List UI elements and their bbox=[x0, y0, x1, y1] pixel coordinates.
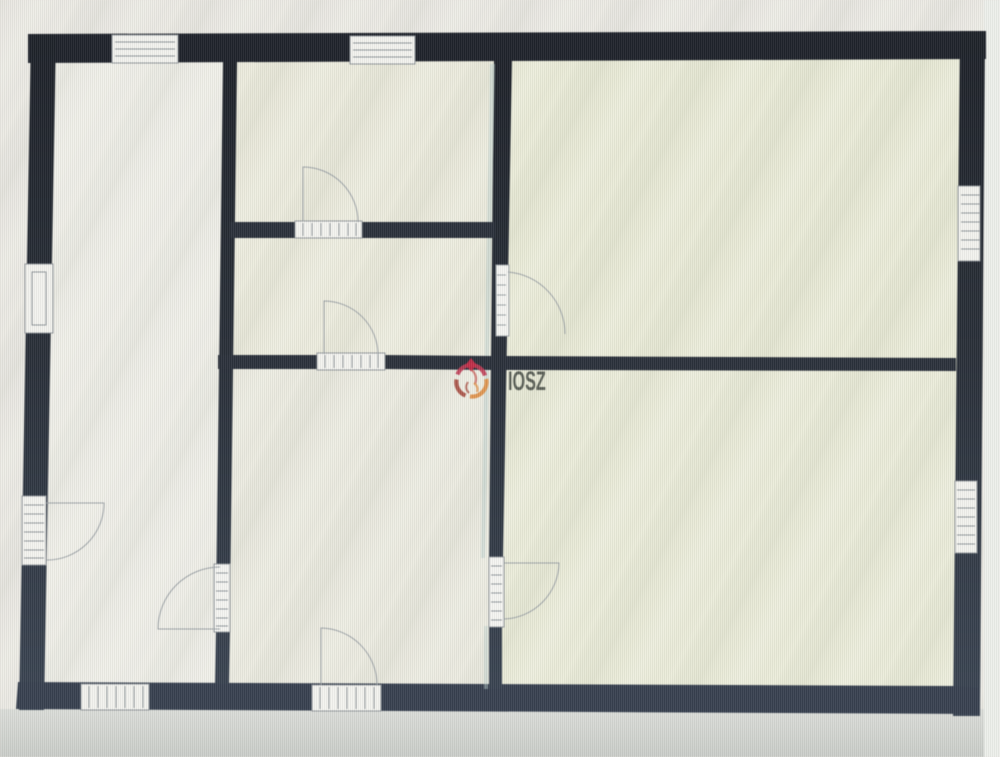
svg-text:IOSZ: IOSZ bbox=[508, 366, 546, 396]
